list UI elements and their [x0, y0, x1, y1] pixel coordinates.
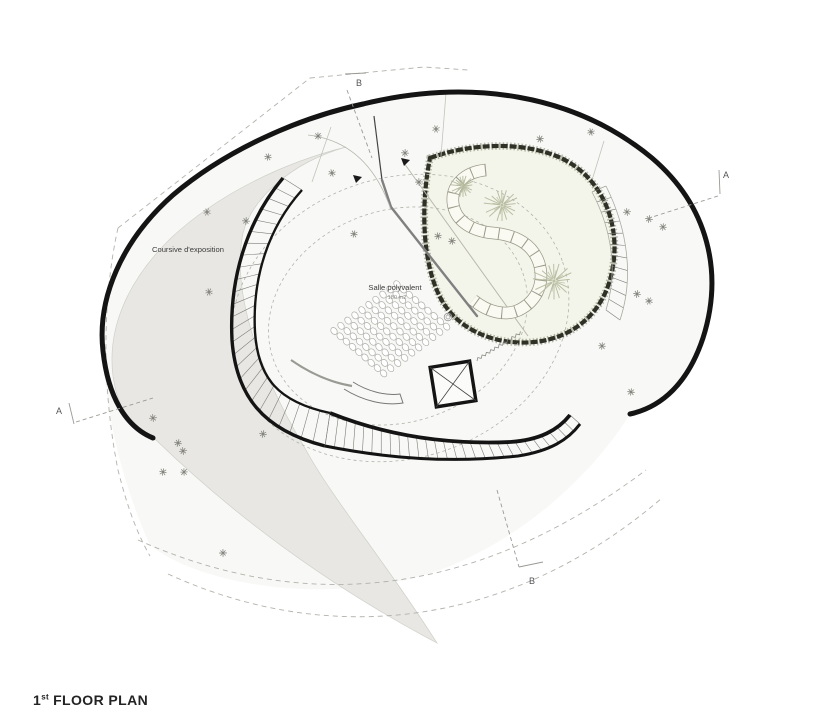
- page-title: 1stFLOOR PLAN: [33, 692, 148, 708]
- title-number: 1: [33, 692, 41, 708]
- section-label: A: [723, 170, 729, 180]
- floor-plan-page: B B A A Coursive d'exposition Salle poly…: [0, 0, 822, 727]
- title-ordinal: st: [41, 692, 49, 701]
- elevator: [430, 361, 476, 407]
- title-text: FLOOR PLAN: [53, 692, 148, 708]
- salle-area-label: 180 m2: [388, 295, 407, 301]
- section-label: B: [356, 78, 362, 88]
- section-label: B: [529, 576, 535, 586]
- section-label: A: [56, 406, 62, 416]
- salle-label: Salle polyvalent: [368, 283, 422, 292]
- coursive-label: Coursive d'exposition: [152, 245, 224, 254]
- floor-plan-drawing: B B A A Coursive d'exposition Salle poly…: [0, 0, 822, 727]
